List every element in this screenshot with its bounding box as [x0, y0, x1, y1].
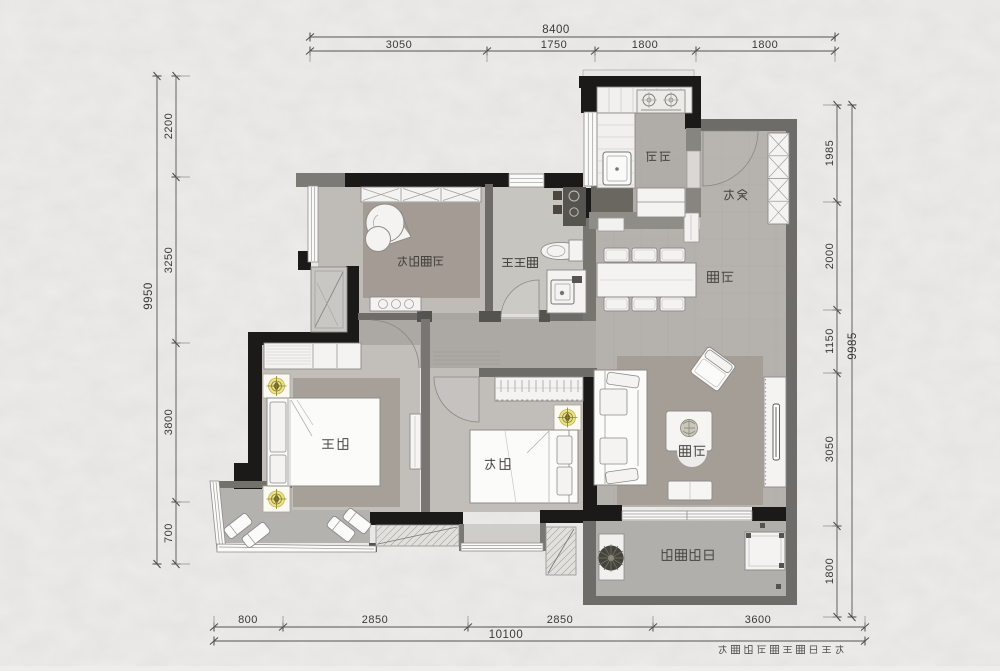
svg-text:3600: 3600 — [745, 614, 771, 626]
svg-text:2850: 2850 — [547, 614, 573, 626]
svg-text:700: 700 — [163, 523, 175, 543]
svg-text:3050: 3050 — [824, 436, 836, 462]
svg-text:1800: 1800 — [752, 39, 778, 51]
svg-text:2000: 2000 — [824, 243, 836, 269]
svg-text:9950: 9950 — [143, 282, 155, 310]
svg-text:3250: 3250 — [163, 247, 175, 273]
svg-text:9985: 9985 — [847, 332, 859, 360]
svg-text:3800: 3800 — [163, 409, 175, 435]
svg-text:10100: 10100 — [489, 629, 523, 641]
svg-text:2850: 2850 — [362, 614, 388, 626]
svg-text:800: 800 — [238, 614, 258, 626]
svg-text:8400: 8400 — [542, 24, 570, 36]
svg-text:2200: 2200 — [163, 113, 175, 139]
svg-text:1800: 1800 — [824, 558, 836, 584]
svg-text:1800: 1800 — [632, 39, 658, 51]
svg-text:1985: 1985 — [824, 140, 836, 166]
svg-text:1750: 1750 — [541, 39, 567, 51]
svg-text:3050: 3050 — [386, 39, 412, 51]
svg-text:1150: 1150 — [824, 328, 836, 354]
